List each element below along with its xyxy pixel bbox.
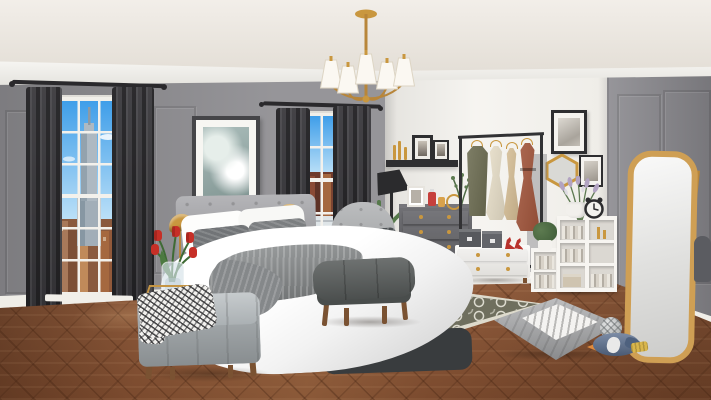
unit-leg bbox=[523, 278, 527, 283]
bookshelf-cubby bbox=[560, 243, 585, 263]
perfume-bottle[interactable] bbox=[428, 192, 436, 206]
bed-bench[interactable] bbox=[312, 256, 416, 301]
rod-finial bbox=[161, 84, 167, 90]
city-view-graphic bbox=[58, 101, 120, 292]
sketch-art bbox=[558, 118, 580, 146]
ottoman-leg bbox=[170, 367, 175, 380]
drawer-knob bbox=[419, 230, 423, 234]
alarm-clock[interactable] bbox=[582, 196, 606, 219]
rod-finial bbox=[259, 102, 264, 107]
wall-hanging-shadow bbox=[694, 236, 711, 282]
drawer-knob bbox=[476, 267, 480, 271]
wall-shelf[interactable] bbox=[386, 160, 458, 167]
drawer-knob bbox=[506, 253, 510, 257]
storage-box[interactable] bbox=[482, 231, 502, 248]
drawer-knob bbox=[419, 215, 423, 219]
storage-box-beige bbox=[563, 274, 581, 287]
clock-graphic bbox=[582, 196, 606, 219]
candle-stick bbox=[404, 147, 407, 160]
candle-stick bbox=[393, 145, 396, 160]
books bbox=[562, 226, 583, 239]
bookshelf-cubby bbox=[560, 220, 585, 240]
standing-mirror[interactable] bbox=[624, 150, 698, 363]
hanger-icon bbox=[471, 140, 483, 147]
photo bbox=[437, 144, 445, 156]
candle-stick bbox=[597, 227, 600, 239]
curtain-left[interactable] bbox=[26, 87, 62, 313]
rod-finial bbox=[9, 81, 15, 87]
photo bbox=[411, 190, 421, 203]
candle-stick bbox=[398, 141, 401, 160]
drawer-knob bbox=[447, 215, 451, 219]
books bbox=[536, 256, 554, 269]
box-label bbox=[467, 237, 472, 241]
bedroom-scene bbox=[0, 0, 711, 400]
candle-stick bbox=[603, 230, 606, 239]
potted-plant[interactable] bbox=[533, 222, 557, 242]
bookshelf-cubby bbox=[534, 252, 556, 270]
bookshelf-cubby bbox=[534, 272, 556, 289]
plant-pot bbox=[538, 240, 552, 251]
bookshelf-cubby bbox=[560, 266, 585, 288]
photo bbox=[418, 141, 427, 156]
hanger-icon bbox=[506, 142, 518, 149]
books bbox=[591, 274, 612, 287]
chandelier-graphic bbox=[302, 2, 430, 108]
books bbox=[562, 249, 583, 262]
box-label bbox=[490, 239, 495, 243]
garment-belt bbox=[520, 168, 536, 171]
hanger-icon bbox=[490, 140, 502, 147]
garment-olive[interactable] bbox=[466, 146, 489, 216]
bookshelf-cubby bbox=[589, 220, 614, 240]
bench-leg bbox=[382, 306, 387, 324]
storage-box[interactable] bbox=[459, 229, 481, 247]
bookshelf-cubby bbox=[589, 243, 614, 263]
unit-drawer[interactable] bbox=[458, 249, 527, 261]
drawer-knob bbox=[476, 253, 480, 257]
ottoman-leg bbox=[228, 365, 233, 378]
bench-leg bbox=[344, 308, 349, 326]
chandelier[interactable] bbox=[302, 2, 430, 108]
perfume-bottle[interactable] bbox=[438, 197, 445, 207]
window-city-view-left[interactable] bbox=[58, 101, 120, 292]
drawer-knob bbox=[506, 267, 510, 271]
bookshelf-cubby bbox=[589, 266, 614, 288]
drawer-knob bbox=[447, 230, 451, 234]
abstract-art bbox=[203, 127, 249, 197]
books bbox=[536, 275, 554, 288]
